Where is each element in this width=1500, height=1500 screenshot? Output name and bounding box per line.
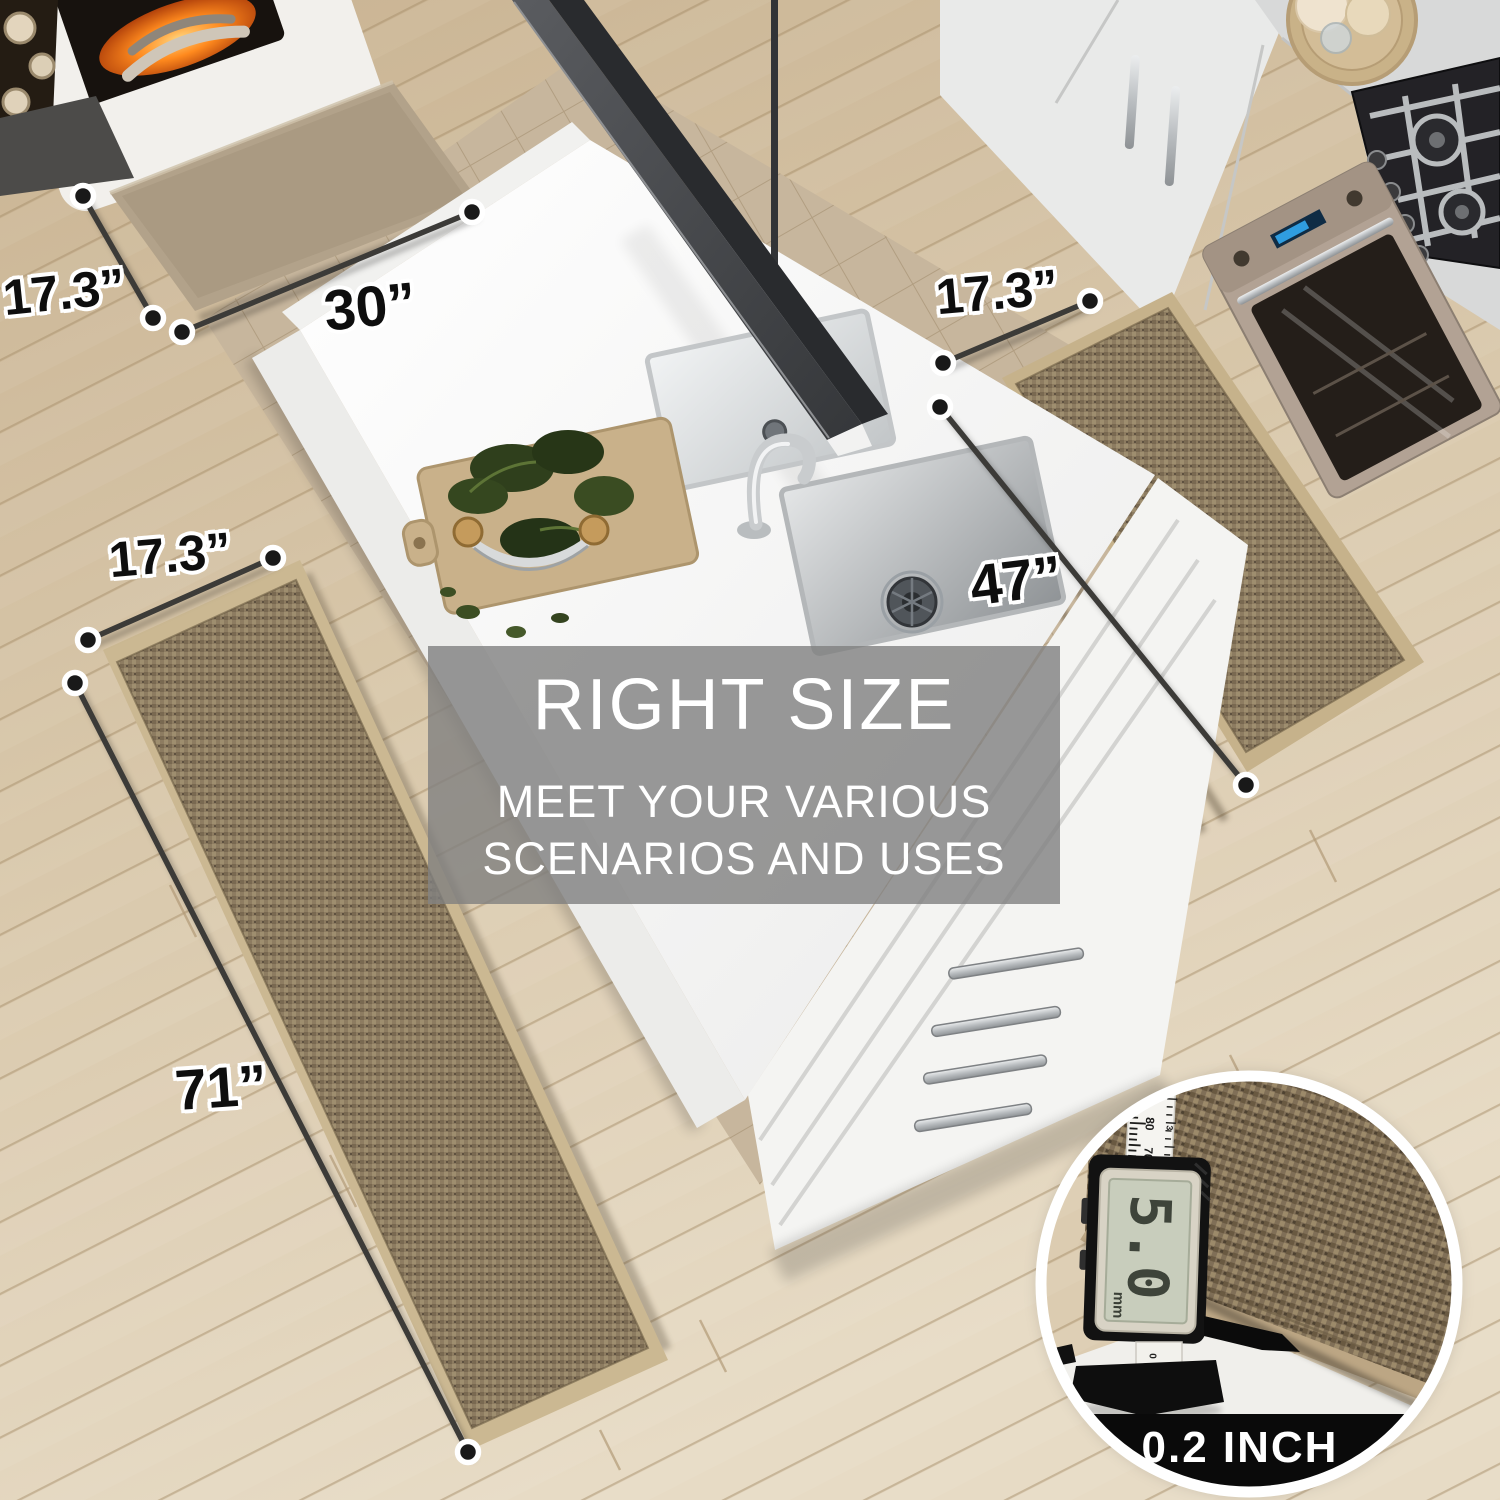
overlay-band: RIGHT SIZE MEET YOUR VARIOUS SCENARIOS A… [428, 646, 1060, 904]
overlay-subtitle-2: SCENARIOS AND USES [482, 836, 1005, 881]
label-top-mat-length: 30” [321, 269, 419, 344]
overlay-title: RIGHT SIZE [533, 669, 956, 741]
knife-handle [580, 516, 608, 544]
ruler-number-80: 80 [1142, 1117, 1157, 1131]
lcd-unit: mm [1109, 1291, 1127, 1318]
product-size-infographic: 90 80 70 3 5.0 mm 0 [0, 0, 1500, 1500]
ruler-zero: 0 [1147, 1353, 1158, 1359]
caliper-body: 5.0 mm [1077, 1154, 1211, 1344]
overlay-subtitle-1: MEET YOUR VARIOUS [497, 779, 992, 824]
knife-handle [454, 518, 482, 546]
label-left-runner-width: 17.3” [107, 521, 234, 589]
candle [1346, 0, 1390, 36]
ruler-inch-number: 3 [1164, 1125, 1174, 1131]
label-right-runner-length: 47” [966, 543, 1065, 620]
glass [1321, 23, 1351, 53]
label-left-runner-length: 71” [173, 1052, 269, 1124]
pendant-cable [771, 0, 778, 274]
label-right-runner-width: 17.3” [934, 258, 1061, 326]
inset-caption: 0.2 INCH [1142, 1423, 1339, 1472]
lcd-value: 5.0 [1114, 1193, 1183, 1302]
